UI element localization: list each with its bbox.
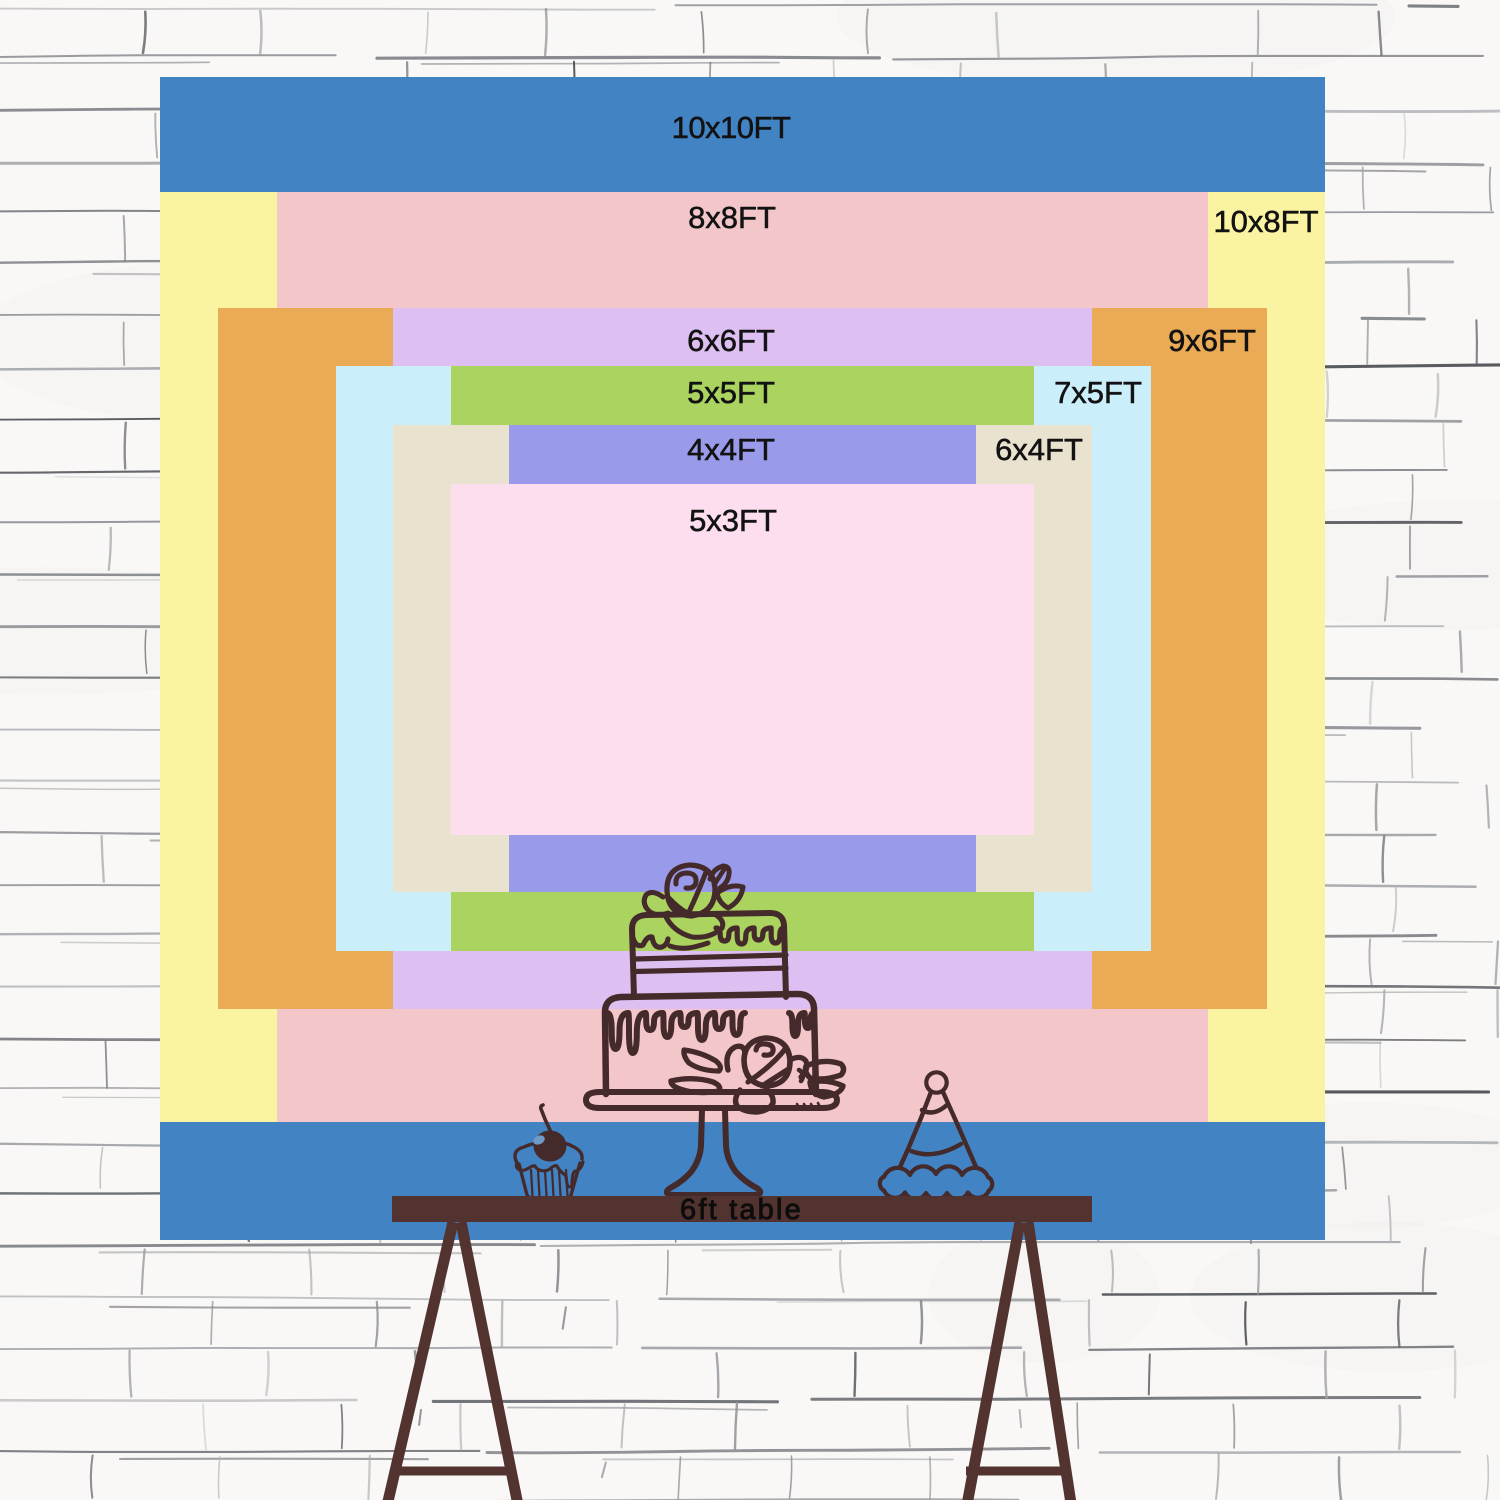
svg-text:8x8FT: 8x8FT (688, 200, 776, 235)
svg-text:6x6FT: 6x6FT (687, 323, 775, 358)
svg-text:10x10FT: 10x10FT (672, 110, 791, 145)
svg-text:5x3FT: 5x3FT (689, 503, 777, 538)
svg-text:4x4FT: 4x4FT (687, 432, 775, 467)
svg-text:10x8FT: 10x8FT (1213, 204, 1318, 239)
svg-text:5x5FT: 5x5FT (687, 375, 775, 410)
svg-text:6x4FT: 6x4FT (995, 432, 1083, 467)
svg-text:9x6FT: 9x6FT (1168, 323, 1256, 358)
svg-text:6ft table: 6ft table (680, 1194, 803, 1226)
svg-text:7x5FT: 7x5FT (1054, 375, 1142, 410)
